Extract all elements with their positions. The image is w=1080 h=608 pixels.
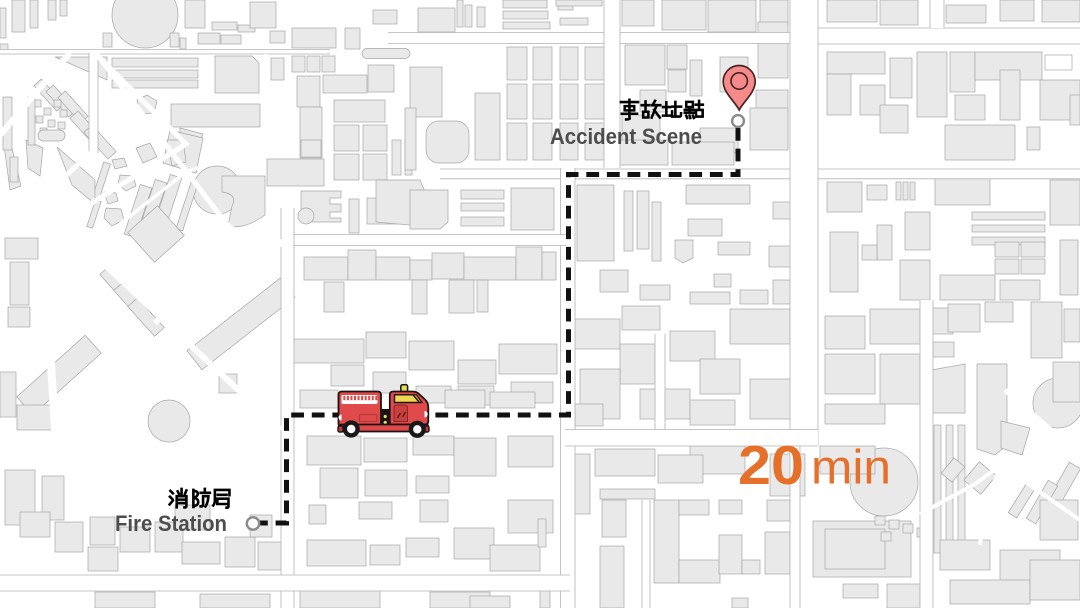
svg-text:20: 20 (738, 434, 804, 496)
svg-text:Accident Scene: Accident Scene (550, 124, 702, 149)
svg-text:min: min (811, 442, 891, 495)
svg-text:Fire Station: Fire Station (115, 511, 227, 536)
